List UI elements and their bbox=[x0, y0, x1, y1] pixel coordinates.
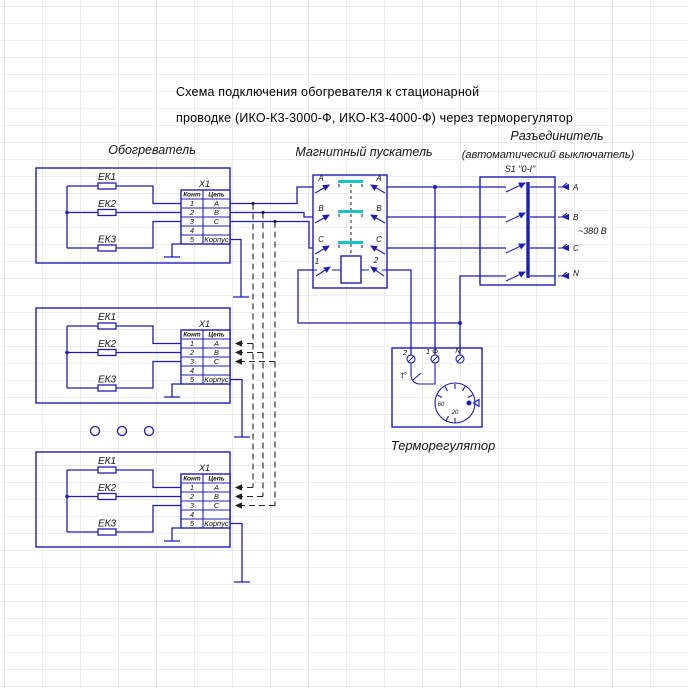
neutral-to-thermostat-wire bbox=[460, 276, 480, 355]
heater-block-3: ЕК1 ЕК2 ЕК3 X1 Конт Цепь 1 А 2 В 3 С 4 5… bbox=[36, 452, 230, 547]
chassis-ground-symbol bbox=[164, 244, 181, 257]
junction-dot bbox=[65, 495, 69, 499]
pin-cell: 2 bbox=[189, 348, 195, 357]
diagram-title: Схема подключения обогревателя к стацион… bbox=[176, 79, 573, 131]
output-terminal bbox=[558, 183, 567, 187]
terminal-block-name: X1 bbox=[198, 319, 210, 329]
junction-dot bbox=[65, 351, 69, 355]
col-header-pin: Конт bbox=[183, 476, 201, 483]
resistor-label: ЕК2 bbox=[98, 339, 117, 350]
resistor-ek3 bbox=[98, 245, 116, 251]
starter-label: Магнитный пускатель bbox=[295, 145, 432, 159]
heater-internal-wires bbox=[67, 470, 181, 532]
chassis-ground-symbol bbox=[164, 384, 181, 397]
contact-label-right: В bbox=[376, 204, 382, 213]
tap-dot bbox=[251, 202, 254, 205]
col-header-pin: Конт bbox=[183, 332, 201, 339]
thermal-contact: t° bbox=[401, 363, 435, 384]
contact-label-left: С bbox=[318, 235, 324, 244]
circuit-cell: Корпус bbox=[204, 519, 229, 528]
thermostat-dial: 60 20 bbox=[435, 383, 479, 423]
terminal-label: 2 bbox=[402, 348, 408, 357]
circuit-cell: А bbox=[213, 483, 219, 492]
thermostat-label: Терморегулятор bbox=[391, 438, 496, 453]
terminal-label: N bbox=[455, 346, 461, 355]
contact-label-right: С bbox=[376, 235, 382, 244]
coil-to-neutral-wire bbox=[298, 270, 460, 323]
tap-dot bbox=[261, 211, 264, 214]
resistor-label: ЕК3 bbox=[98, 235, 117, 246]
resistor-label: ЕК1 bbox=[98, 172, 116, 183]
disconnector-label-1: Разъединитель bbox=[510, 129, 603, 143]
ellipsis-dot bbox=[118, 427, 127, 436]
disconnector-label-2: (автоматический выключатель) bbox=[462, 149, 635, 161]
coil-terminal-1-label: 1 bbox=[315, 257, 319, 266]
resistor-ek3 bbox=[98, 385, 116, 391]
title-line-1: Схема подключения обогревателя к стацион… bbox=[176, 79, 573, 105]
contact-bridge bbox=[338, 210, 363, 213]
neutral-junction-dot bbox=[458, 321, 462, 325]
pin-cell: 1 bbox=[190, 339, 194, 348]
contact-label-left: В bbox=[318, 204, 324, 213]
heater-label: Обогреватель bbox=[108, 143, 196, 157]
mains-voltage-label: ~380 В bbox=[578, 226, 607, 236]
block2-ground-wire bbox=[230, 380, 250, 438]
resistor-ek2 bbox=[98, 350, 116, 356]
circuit-cell: Корпус bbox=[204, 235, 229, 244]
output-terminal bbox=[558, 213, 567, 217]
thermal-contact-symbol: t° bbox=[401, 371, 407, 380]
resistor-label: ЕК3 bbox=[98, 519, 117, 530]
switch-designator: S1 "0-I" bbox=[505, 164, 536, 174]
circuit-cell: В bbox=[214, 348, 219, 357]
output-label: А bbox=[572, 183, 578, 192]
resistor-label: ЕК1 bbox=[98, 456, 116, 467]
resistor-ek1 bbox=[98, 323, 116, 329]
circuit-cell: Корпус bbox=[204, 375, 229, 384]
block1-ground-wire bbox=[230, 240, 249, 298]
thermostat-terminal-2: 2 bbox=[402, 348, 415, 363]
circuit-cell: А bbox=[213, 199, 219, 208]
col-header-circuit: Цепь bbox=[208, 192, 224, 199]
chassis-ground-symbol bbox=[164, 528, 181, 541]
heater-internal-wires bbox=[67, 326, 181, 388]
disconnector-box bbox=[480, 177, 555, 285]
resistor-label: ЕК2 bbox=[98, 483, 117, 494]
pin-cell: 2 bbox=[189, 492, 195, 501]
circuit-cell: С bbox=[214, 357, 220, 366]
heater-block-1: Обогреватель ЕК1 ЕК2 ЕК3 X1 Конт Цепь 1 … bbox=[36, 143, 230, 263]
circuit-cell: В bbox=[214, 492, 219, 501]
resistor-ek2 bbox=[98, 494, 116, 500]
coil-to-thermostat-wire bbox=[387, 270, 411, 355]
starter-contact-b: В В bbox=[315, 204, 385, 223]
resistor-ek1 bbox=[98, 467, 116, 473]
output-label: N bbox=[573, 269, 579, 278]
phase-wires-block1-to-starter bbox=[230, 187, 313, 297]
contact-label-left: А bbox=[317, 174, 323, 183]
starter-contact-a: А А bbox=[315, 174, 385, 193]
dial-scale-label: 20 bbox=[451, 410, 459, 416]
control-circuit-wires bbox=[298, 187, 480, 355]
starter-contact-c: С С bbox=[315, 235, 385, 254]
output-terminal bbox=[558, 272, 567, 276]
ellipsis-dot bbox=[145, 427, 154, 436]
disconnector: Разъединитель (автоматический выключател… bbox=[462, 129, 635, 285]
coil-terminal-2-label: 2 bbox=[373, 256, 379, 265]
contact-label-right: А bbox=[375, 174, 381, 183]
terminal-block-name: X1 bbox=[198, 463, 210, 473]
pin-cell: 4 bbox=[190, 366, 194, 375]
ellipsis-dot bbox=[91, 427, 100, 436]
resistor-label: ЕК2 bbox=[98, 199, 117, 210]
pin-cell: 2 bbox=[189, 208, 195, 217]
phase-wires-starter-to-disconnector bbox=[387, 185, 480, 248]
output-label: В bbox=[573, 213, 579, 222]
dial-scale-label: 60 bbox=[438, 402, 445, 408]
spreadsheet-canvas: Схема подключения обогревателя к стацион… bbox=[0, 0, 688, 688]
pin-cell: 1 bbox=[190, 199, 194, 208]
col-header-circuit: Цепь bbox=[208, 476, 224, 483]
resistor-ek3 bbox=[98, 529, 116, 535]
circuit-cell: С bbox=[214, 217, 220, 226]
dial-knob-position bbox=[467, 401, 472, 406]
circuit-cell: В bbox=[214, 208, 219, 217]
title-line-2: проводке (ИКО-К3-3000-Ф, ИКО-К3-4000-Ф) … bbox=[176, 105, 573, 131]
terminal-block-name: X1 bbox=[198, 179, 210, 189]
block3-ground-wire bbox=[230, 524, 250, 583]
thermostat-terminal-1f: 1 Ф bbox=[426, 347, 439, 363]
pin-cell: 4 bbox=[190, 226, 194, 235]
contact-bridge bbox=[338, 180, 363, 183]
resistor-ek1 bbox=[98, 183, 116, 189]
starter-coil: 1 2 bbox=[313, 256, 387, 283]
output-terminal bbox=[558, 244, 567, 248]
parallel-feed-dashed-wires bbox=[236, 202, 277, 506]
coil bbox=[341, 256, 361, 283]
circuit-cell: А bbox=[213, 339, 219, 348]
resistor-label: ЕК1 bbox=[98, 312, 116, 323]
tap-dot bbox=[273, 220, 276, 223]
heater-block-2: ЕК1 ЕК2 ЕК3 X1 Конт Цепь 1 А 2 В 3 С 4 5… bbox=[36, 308, 230, 403]
pin-cell: 4 bbox=[190, 510, 194, 519]
col-header-pin: Конт bbox=[183, 192, 201, 199]
heater-internal-wires bbox=[67, 186, 181, 248]
resistor-ek2 bbox=[98, 210, 116, 216]
output-label: С bbox=[573, 244, 579, 253]
pin-cell: 1 bbox=[190, 483, 194, 492]
col-header-circuit: Цепь bbox=[208, 332, 224, 339]
thermostat: Терморегулятор 2 1 Ф N t° bbox=[391, 346, 496, 453]
continuation-dots bbox=[91, 427, 154, 436]
resistor-label: ЕК3 bbox=[98, 375, 117, 386]
contact-bridge bbox=[338, 241, 363, 244]
junction-dot bbox=[65, 211, 69, 215]
circuit-cell: С bbox=[214, 501, 220, 510]
